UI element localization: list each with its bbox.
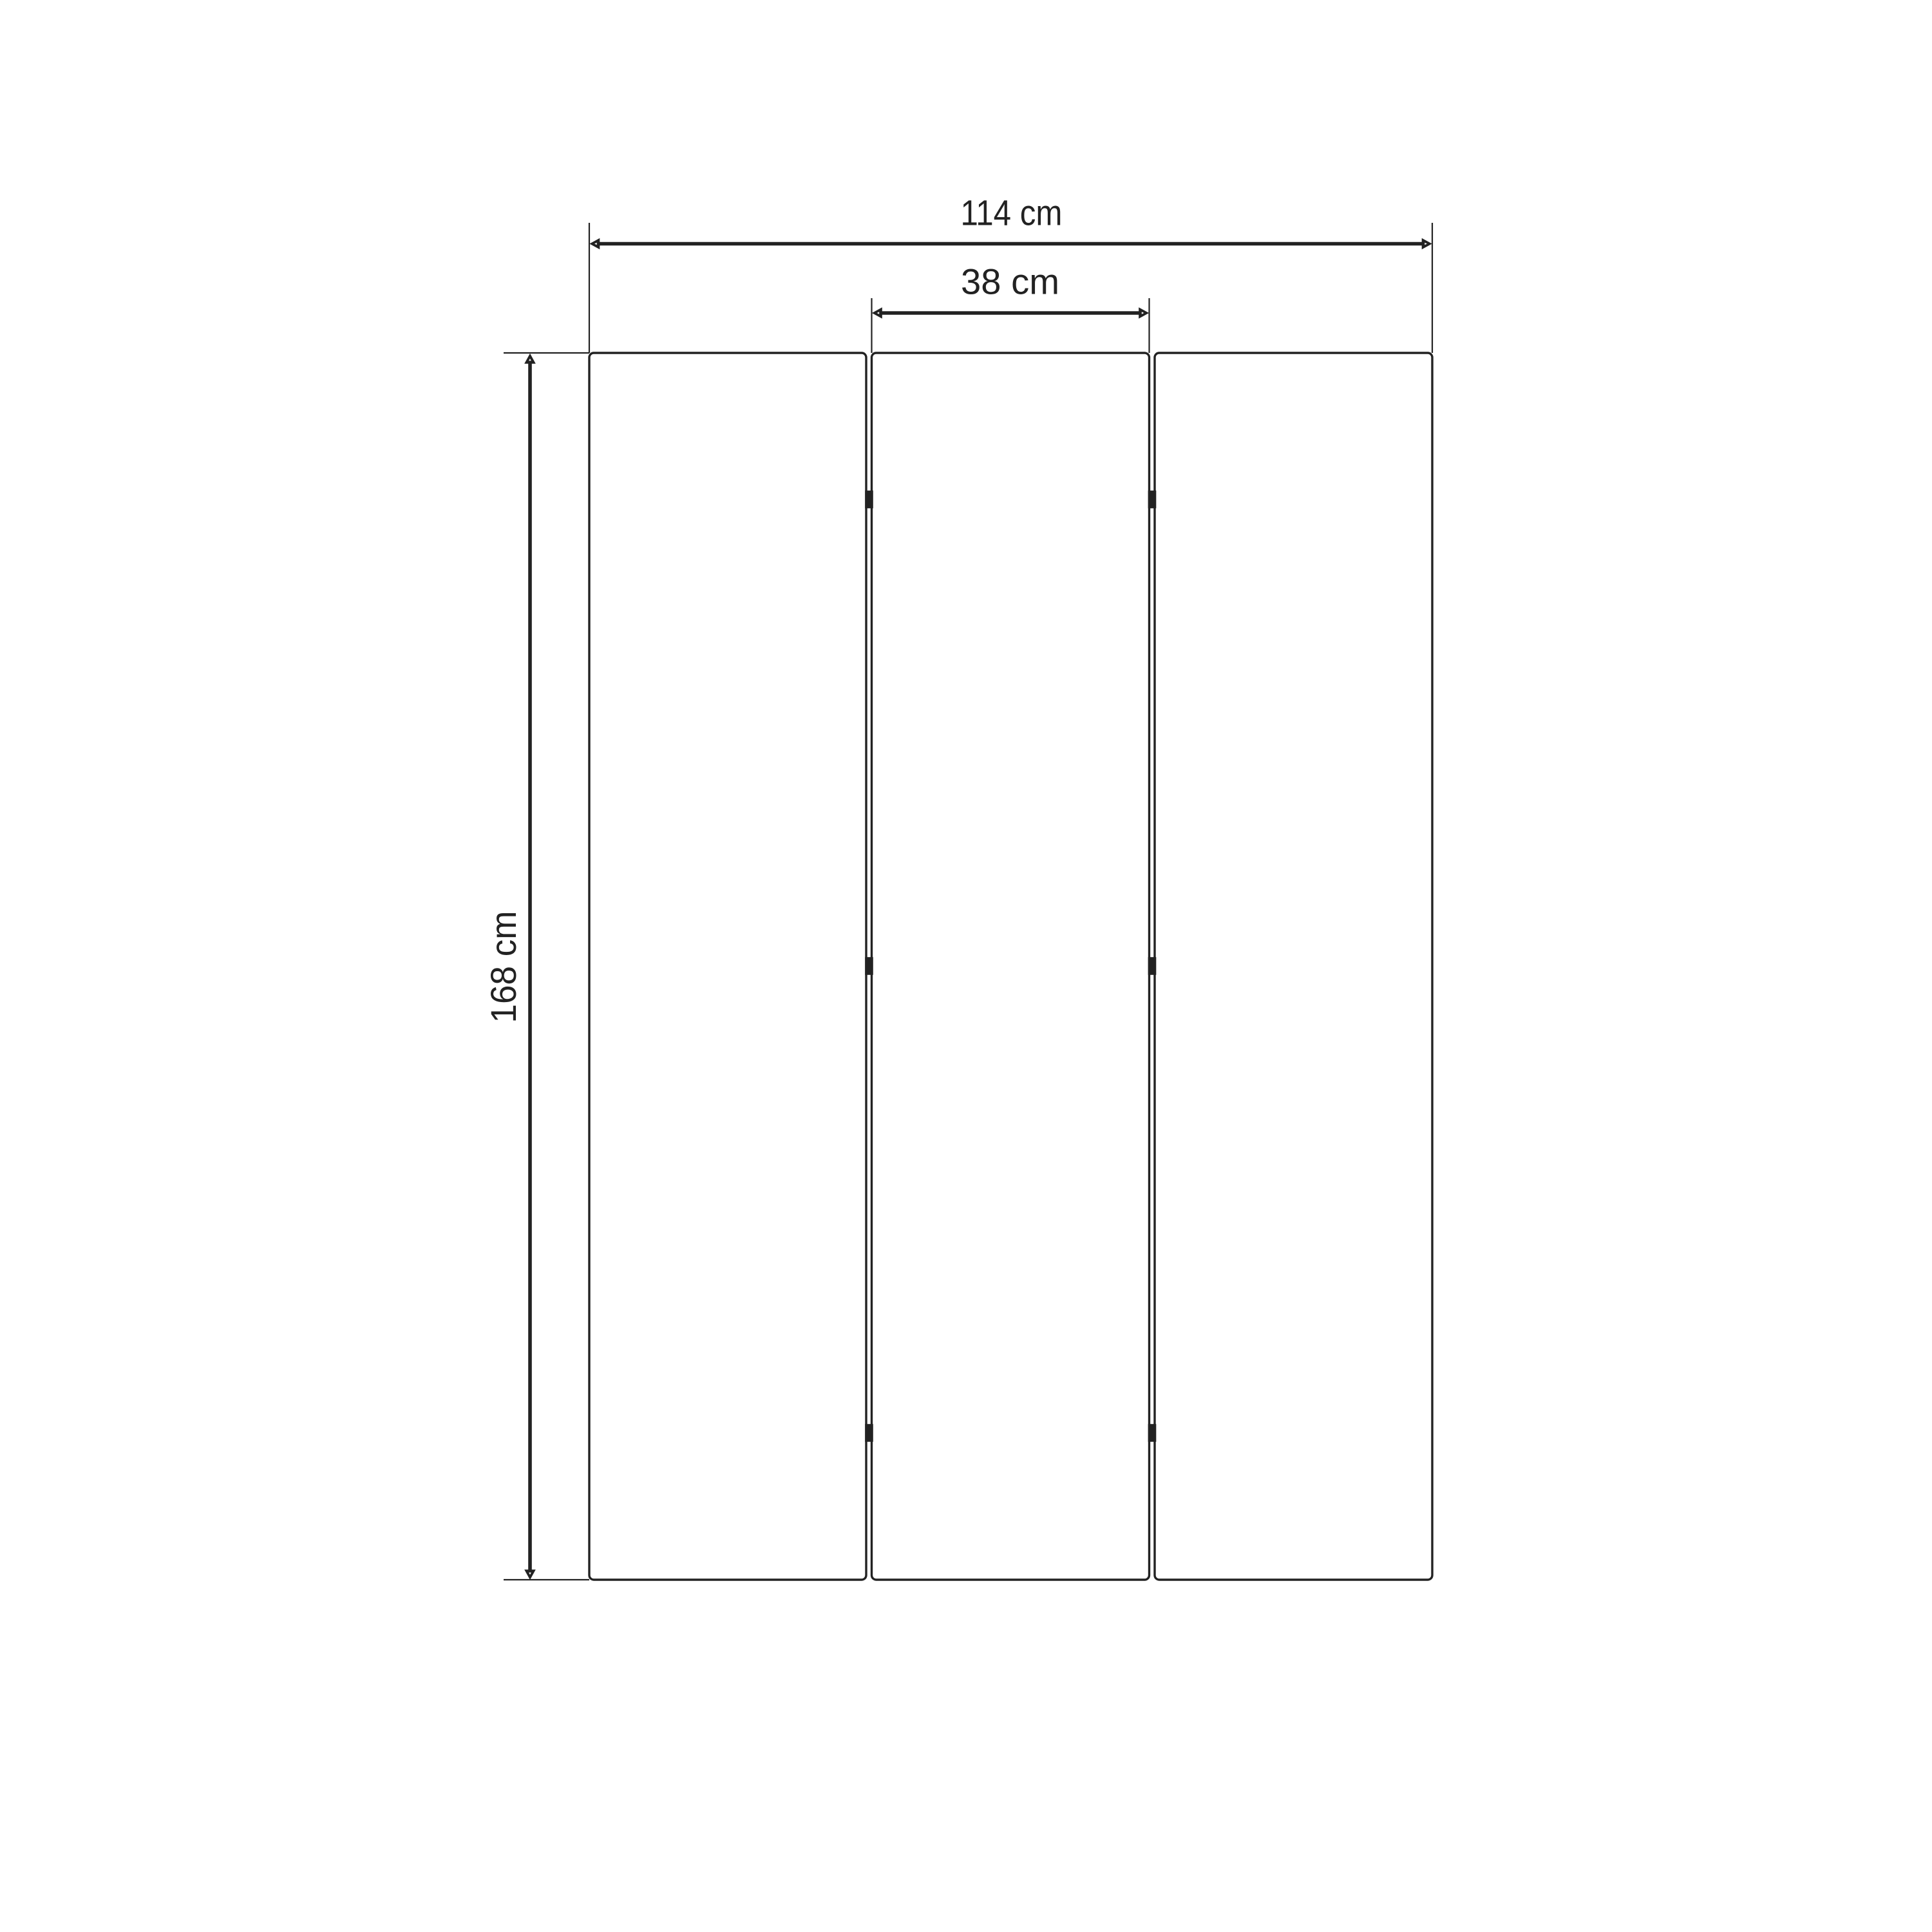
svg-text:114 cm: 114 cm xyxy=(961,193,1063,233)
svg-text:38 cm: 38 cm xyxy=(961,261,1059,302)
svg-text:168 cm: 168 cm xyxy=(483,911,524,1023)
